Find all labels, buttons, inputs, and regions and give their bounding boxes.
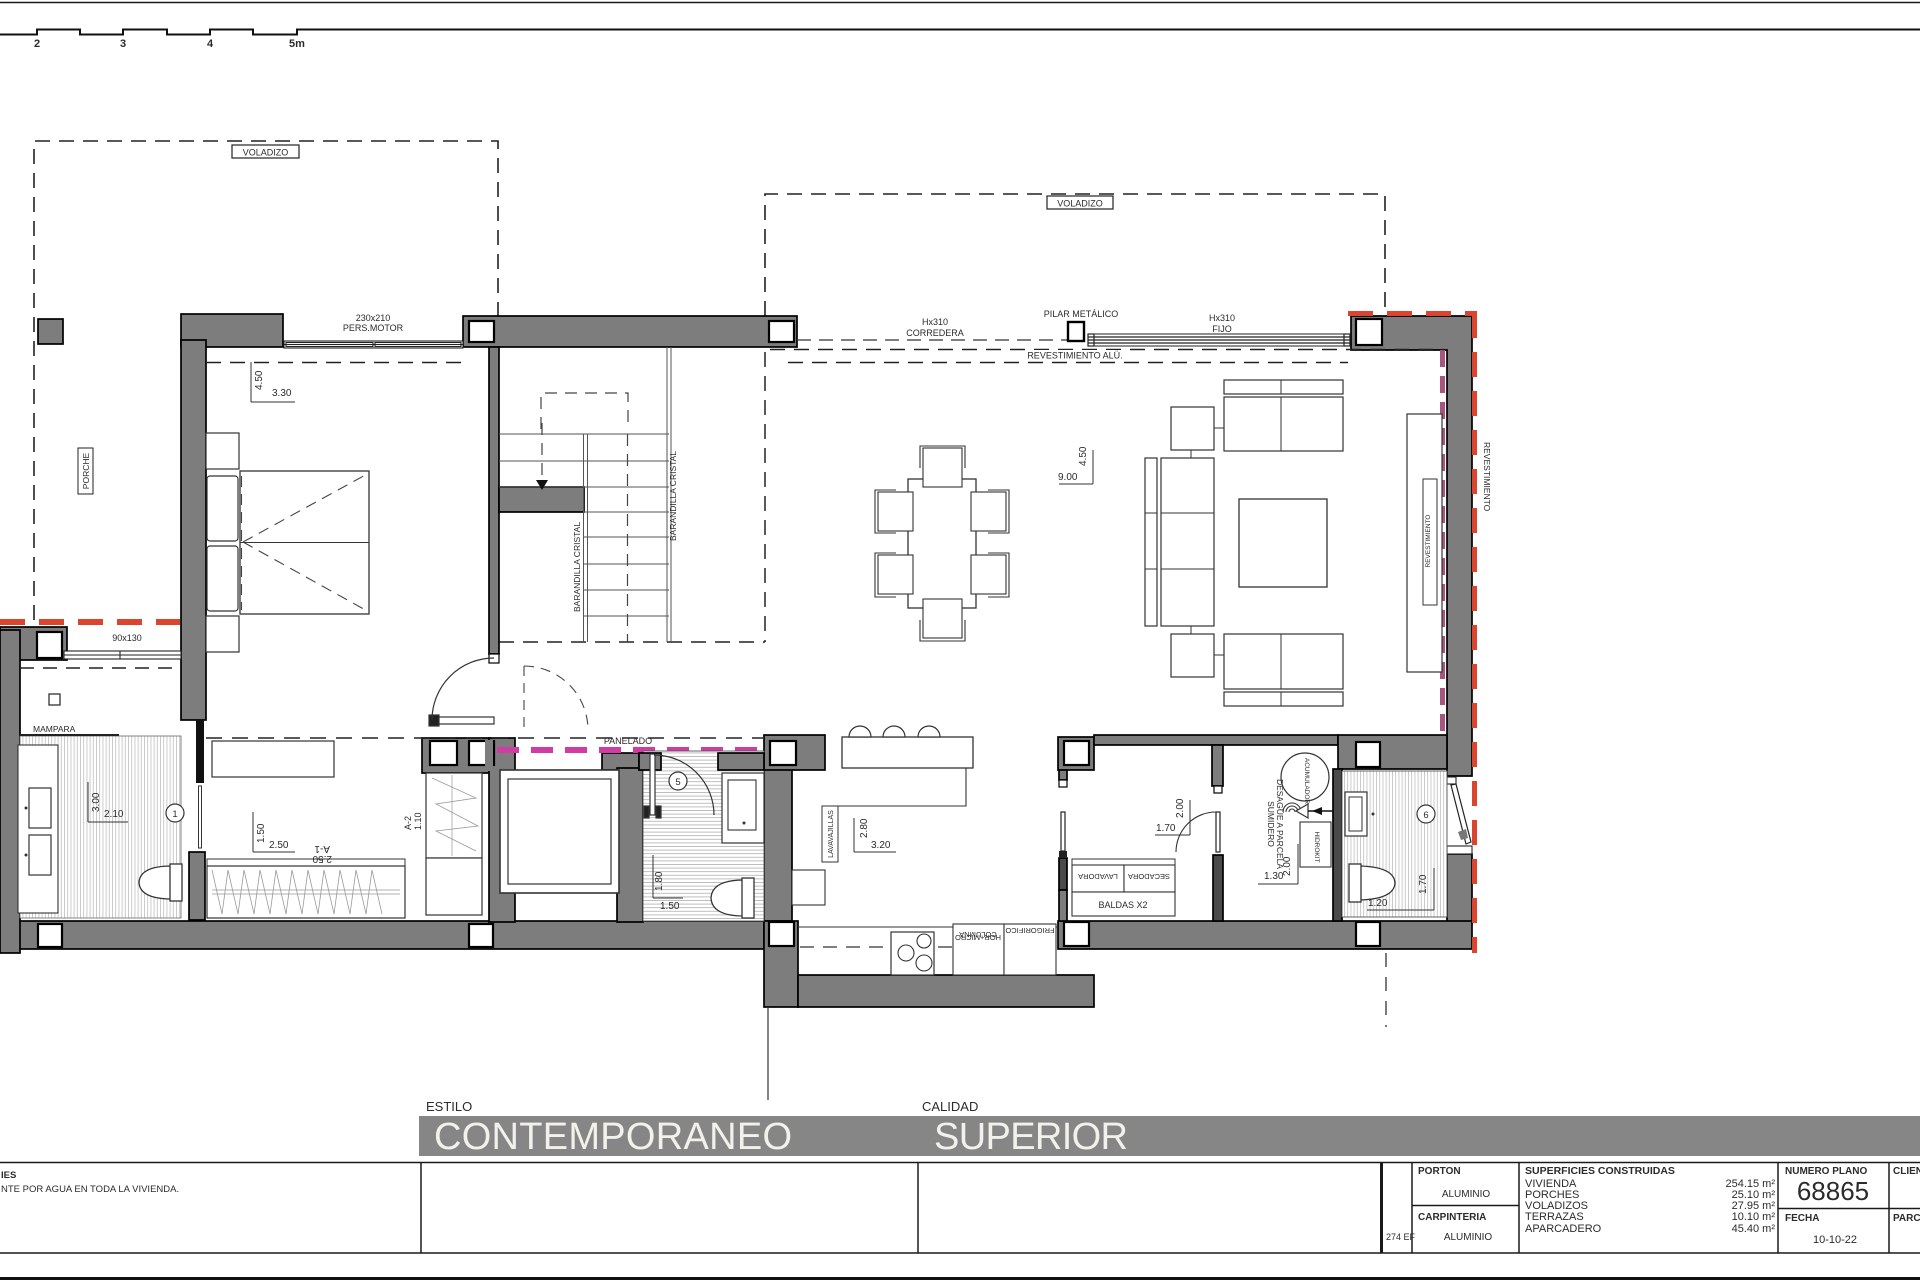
svg-text:CONTEMPORANEO: CONTEMPORANEO — [434, 1116, 792, 1158]
svg-text:1.70: 1.70 — [1418, 874, 1429, 894]
svg-text:LAVADORA: LAVADORA — [1078, 872, 1118, 881]
svg-text:HOR+MICRO: HOR+MICRO — [955, 933, 1001, 942]
svg-text:PORTON: PORTON — [1418, 1166, 1461, 1177]
svg-text:1: 1 — [172, 809, 177, 820]
svg-text:9.00: 9.00 — [1058, 472, 1078, 483]
svg-text:HIDROKIT: HIDROKIT — [1313, 831, 1320, 862]
svg-text:2: 2 — [34, 38, 40, 50]
svg-text:REVESTIMIENTO: REVESTIMIENTO — [1482, 442, 1492, 512]
svg-text:A-1: A-1 — [314, 843, 330, 854]
svg-text:DESAGÜE A PARCELA: DESAGÜE A PARCELA — [1275, 779, 1285, 869]
svg-text:VOLADIZO: VOLADIZO — [1057, 199, 1103, 209]
svg-text:10.10 m²: 10.10 m² — [1732, 1211, 1776, 1223]
svg-text:68865: 68865 — [1797, 1176, 1869, 1206]
svg-text:5: 5 — [675, 777, 680, 788]
svg-text:BALDAS X2: BALDAS X2 — [1098, 900, 1147, 910]
svg-text:CLIEN: CLIEN — [1893, 1166, 1920, 1177]
svg-text:2.50: 2.50 — [269, 840, 289, 851]
svg-text:2.80: 2.80 — [859, 818, 870, 838]
svg-text:2.00: 2.00 — [1282, 856, 1293, 876]
svg-text:4.50: 4.50 — [254, 370, 265, 390]
svg-text:3: 3 — [120, 38, 126, 50]
svg-text:Hx310: Hx310 — [1209, 313, 1235, 323]
svg-text:2.00: 2.00 — [1175, 798, 1186, 818]
svg-text:6: 6 — [1423, 810, 1428, 821]
svg-text:PORCHE: PORCHE — [81, 452, 91, 489]
svg-text:ALUMINIO: ALUMINIO — [1444, 1232, 1493, 1243]
svg-text:PILAR METÁLICO: PILAR METÁLICO — [1044, 309, 1119, 319]
svg-text:SECADORA: SECADORA — [1128, 872, 1170, 881]
svg-text:APARCADERO: APARCADERO — [1525, 1223, 1602, 1235]
svg-text:REVESTIMIENTO ALÜ.: REVESTIMIENTO ALÜ. — [1027, 351, 1122, 361]
svg-text:TERRAZAS: TERRAZAS — [1525, 1211, 1584, 1223]
svg-text:PARC: PARC — [1893, 1213, 1920, 1224]
svg-text:VOLADIZO: VOLADIZO — [243, 148, 289, 158]
svg-text:230x210: 230x210 — [356, 313, 391, 323]
svg-text:1.20: 1.20 — [1368, 898, 1388, 909]
svg-text:1.50: 1.50 — [256, 823, 267, 843]
svg-text:REVESTIMIENTO: REVESTIMIENTO — [1425, 515, 1432, 568]
svg-text:IES: IES — [1, 1170, 16, 1181]
svg-text:CALIDAD: CALIDAD — [922, 1099, 978, 1114]
svg-text:5m: 5m — [289, 38, 305, 50]
svg-text:1.70: 1.70 — [1156, 823, 1176, 834]
svg-text:MAMPARA: MAMPARA — [33, 724, 76, 734]
svg-text:4: 4 — [207, 38, 214, 50]
svg-text:4.50: 4.50 — [1078, 446, 1089, 466]
svg-text:1.50: 1.50 — [660, 901, 680, 912]
svg-text:3.00: 3.00 — [91, 792, 102, 812]
svg-text:FECHA: FECHA — [1785, 1213, 1819, 1224]
svg-text:ALUMINIO: ALUMINIO — [1442, 1189, 1491, 1200]
svg-text:SUPERIOR: SUPERIOR — [934, 1116, 1128, 1158]
svg-text:ESTILO: ESTILO — [426, 1099, 472, 1114]
svg-text:FRIGORIFICO: FRIGORIFICO — [1005, 926, 1054, 935]
svg-text:CARPINTERIA: CARPINTERIA — [1418, 1212, 1486, 1223]
svg-text:CORREDERA: CORREDERA — [906, 328, 964, 338]
svg-text:SUMIDERO: SUMIDERO — [1266, 801, 1276, 847]
svg-text:3.30: 3.30 — [272, 388, 292, 399]
svg-text:PERS.MOTOR: PERS.MOTOR — [343, 323, 404, 333]
svg-text:45.40 m²: 45.40 m² — [1732, 1223, 1776, 1235]
svg-text:2.50: 2.50 — [312, 853, 332, 864]
svg-text:FIJO: FIJO — [1212, 324, 1232, 334]
svg-text:LAVAVAJILLAS: LAVAVAJILLAS — [828, 810, 835, 858]
svg-text:3.20: 3.20 — [871, 840, 891, 851]
svg-text:BARANDILLA CRISTAL: BARANDILLA CRISTAL — [668, 451, 678, 541]
svg-text:1.30: 1.30 — [1264, 871, 1284, 882]
svg-text:1.80: 1.80 — [654, 871, 665, 891]
svg-text:ACUMULADOR: ACUMULADOR — [1303, 758, 1310, 805]
svg-text:274 EF: 274 EF — [1386, 1232, 1416, 1242]
svg-text:A-2: A-2 — [403, 816, 413, 830]
svg-text:Hx310: Hx310 — [922, 317, 948, 327]
svg-text:NTE POR AGUA EN TODA LA VIVIEN: NTE POR AGUA EN TODA LA VIVIENDA. — [1, 1184, 179, 1195]
svg-text:10-10-22: 10-10-22 — [1813, 1234, 1857, 1246]
svg-text:90x130: 90x130 — [112, 633, 142, 643]
svg-text:2.10: 2.10 — [104, 809, 124, 820]
svg-text:BARANDILLA CRISTAL: BARANDILLA CRISTAL — [572, 522, 582, 612]
svg-text:1.10: 1.10 — [413, 812, 423, 830]
svg-text:SUPERFICIES CONSTRUIDAS: SUPERFICIES CONSTRUIDAS — [1525, 1165, 1675, 1177]
